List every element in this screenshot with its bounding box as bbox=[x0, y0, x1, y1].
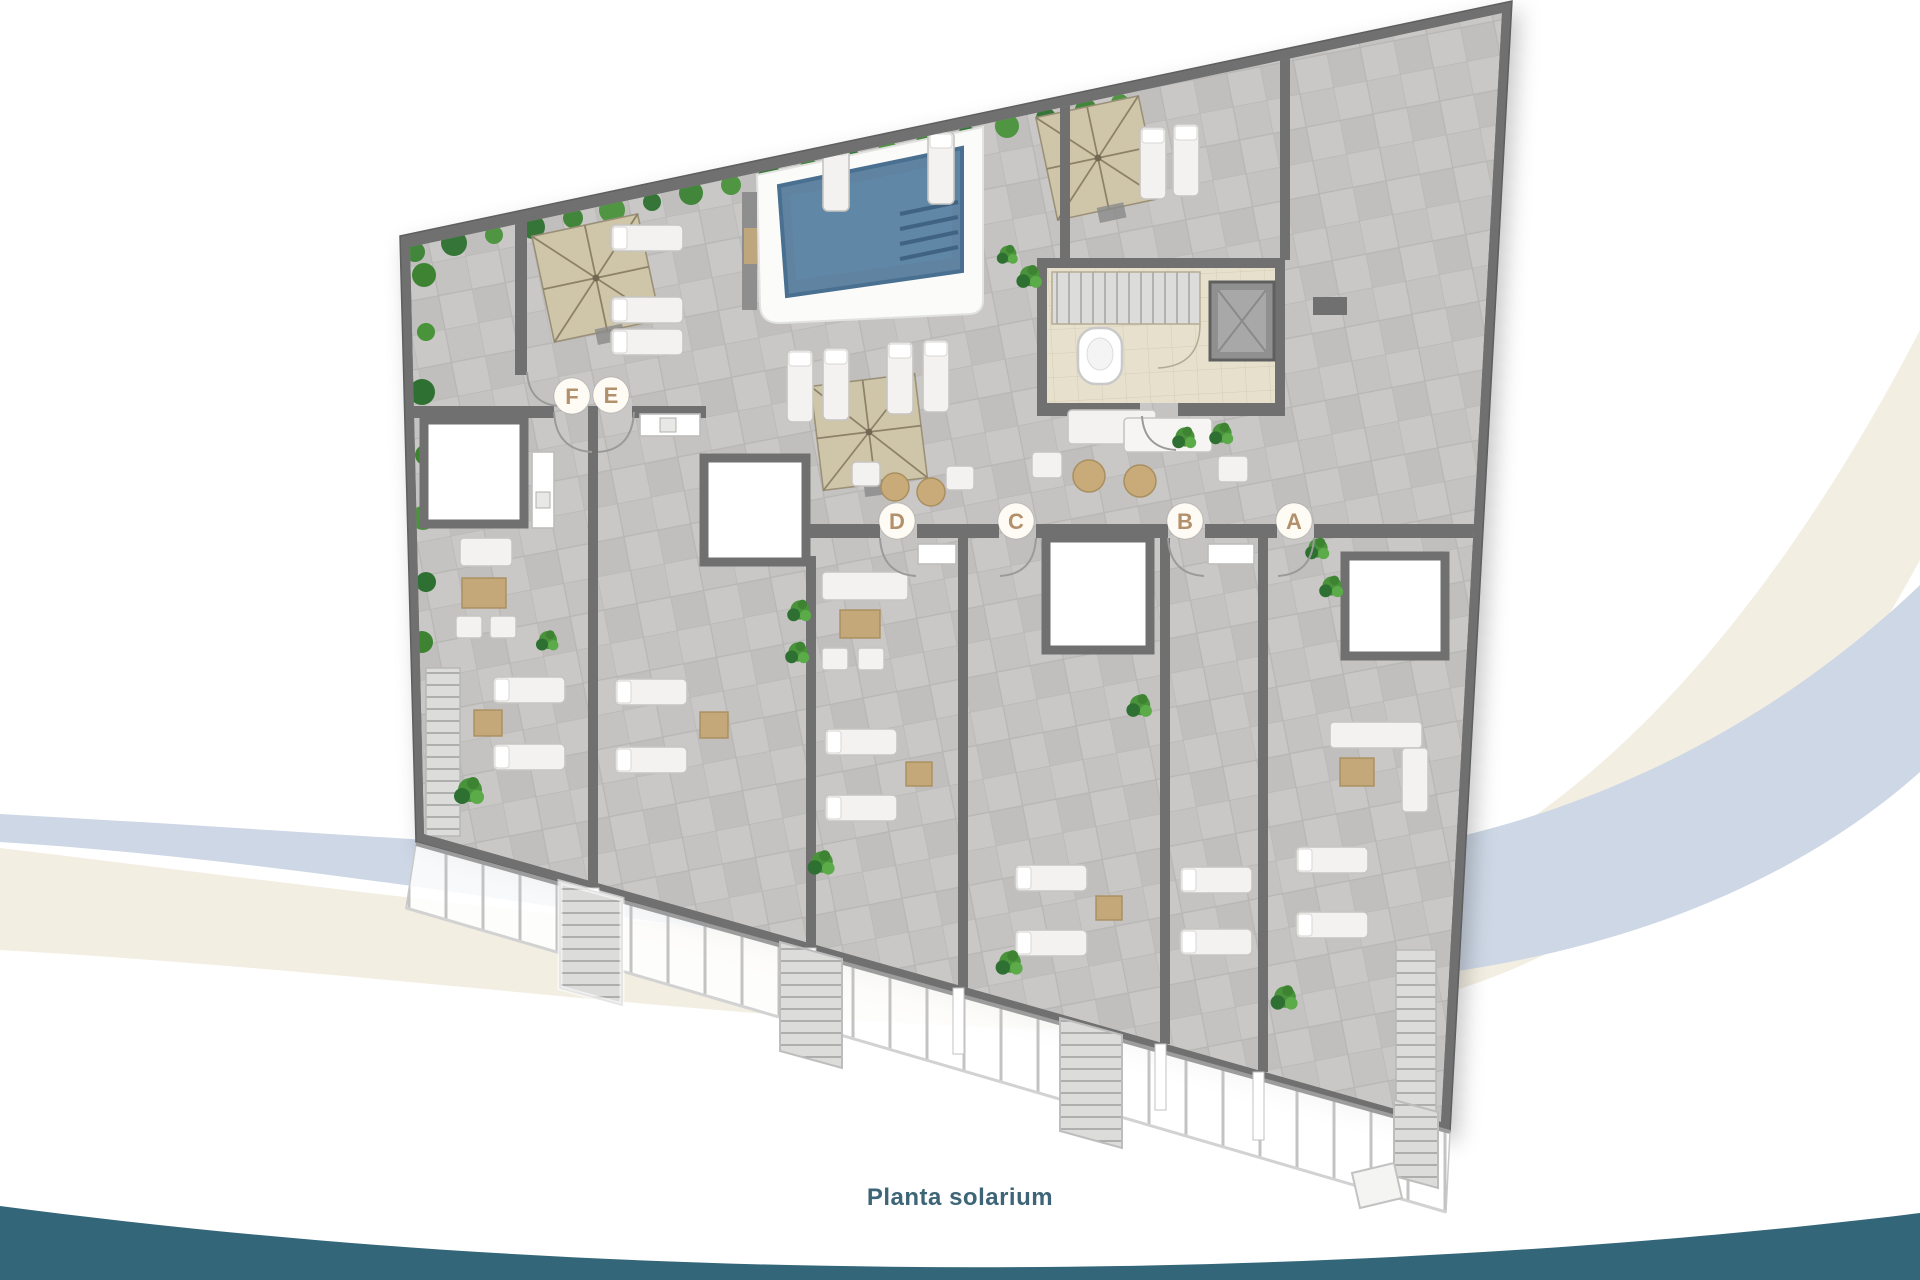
unit-label-a: A bbox=[1276, 503, 1312, 539]
plan-caption: Planta solarium bbox=[0, 1184, 1920, 1212]
unit-letter: A bbox=[1286, 509, 1302, 534]
unit-label-f: F bbox=[554, 378, 590, 414]
railing-pillar bbox=[1253, 1072, 1264, 1140]
table bbox=[1340, 758, 1374, 786]
pouf bbox=[881, 473, 909, 501]
skylight-box bbox=[424, 420, 524, 524]
floor-plan-figure: F E D C B A bbox=[0, 0, 1920, 1280]
railing-pillar bbox=[1155, 1044, 1166, 1110]
skylight-box bbox=[1046, 538, 1150, 650]
sink-counter bbox=[532, 452, 554, 528]
pouf bbox=[917, 478, 945, 506]
terrace-stairs bbox=[1396, 950, 1436, 1120]
table bbox=[474, 710, 502, 736]
unit-label-e: E bbox=[593, 377, 629, 413]
table bbox=[1096, 896, 1122, 920]
pool-shower-deck bbox=[744, 228, 757, 264]
unit-label-c: C bbox=[998, 503, 1034, 539]
pouf bbox=[1073, 460, 1105, 492]
table bbox=[840, 610, 880, 638]
sink-counter bbox=[918, 544, 956, 564]
sink-counter bbox=[1208, 544, 1254, 564]
bottom-wave bbox=[0, 1206, 1920, 1280]
table bbox=[462, 578, 506, 608]
table bbox=[906, 762, 932, 786]
skylight-box bbox=[704, 458, 806, 562]
pouf bbox=[1124, 465, 1156, 497]
core-stairs bbox=[1052, 272, 1200, 324]
table bbox=[700, 712, 728, 738]
unit-letter: D bbox=[889, 509, 905, 534]
stair-lift-core bbox=[1047, 268, 1275, 403]
terrace-stairs bbox=[426, 668, 460, 836]
page: F E D C B A Planta solarium bbox=[0, 0, 1920, 1280]
unit-label-b: B bbox=[1167, 503, 1203, 539]
unit-letter: C bbox=[1008, 509, 1024, 534]
unit-letter: B bbox=[1177, 509, 1193, 534]
railing-pillar bbox=[953, 988, 964, 1054]
skylight-box bbox=[1345, 556, 1445, 656]
unit-letter: E bbox=[604, 383, 619, 408]
unit-label-d: D bbox=[879, 503, 915, 539]
unit-letter: F bbox=[565, 384, 578, 409]
